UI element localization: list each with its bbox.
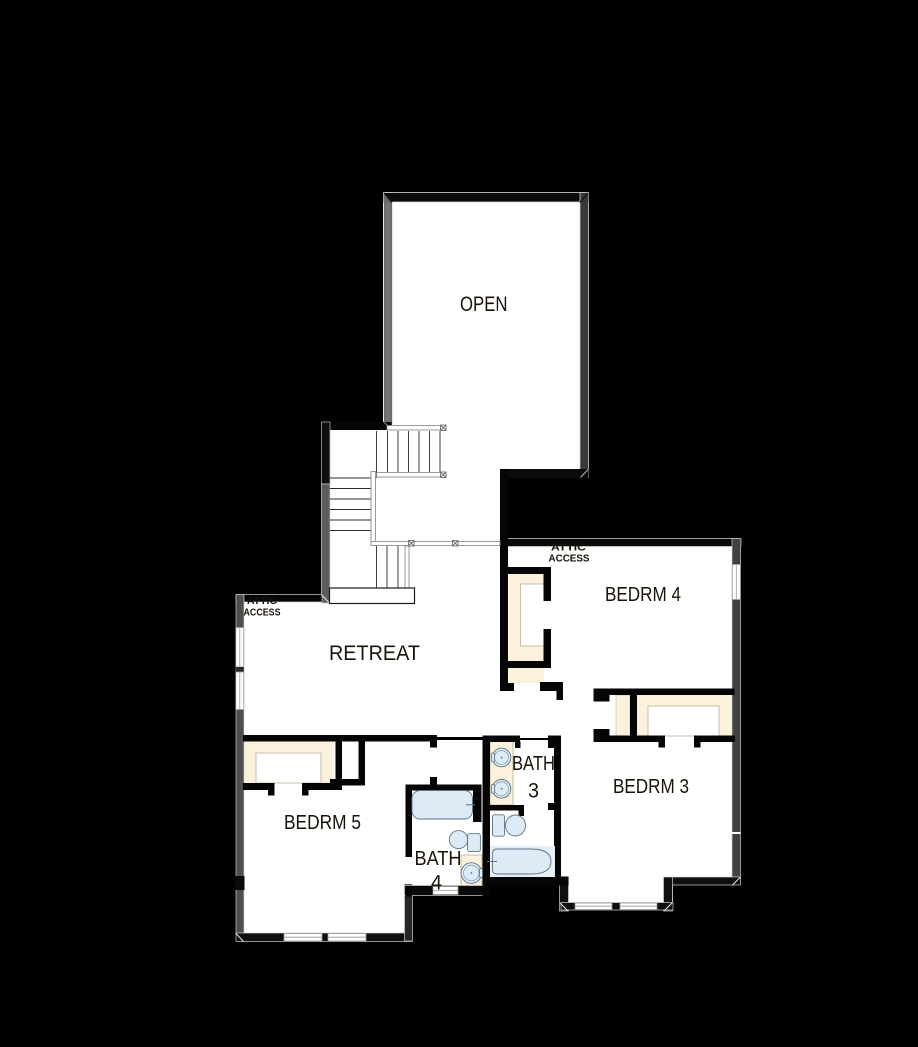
svg-text:ATTIC: ATTIC	[247, 595, 277, 607]
svg-text:BATH: BATH	[415, 847, 462, 870]
svg-text:ACCESS: ACCESS	[549, 553, 590, 565]
svg-text:BEDRM 3: BEDRM 3	[613, 776, 689, 798]
svg-text:OPEN: OPEN	[460, 293, 508, 316]
svg-text:BEDRM 4: BEDRM 4	[605, 584, 681, 606]
svg-text:ACCESS: ACCESS	[244, 607, 281, 619]
svg-text:BATH: BATH	[512, 753, 555, 775]
svg-text:3: 3	[528, 780, 539, 803]
svg-text:RETREAT: RETREAT	[329, 642, 420, 665]
svg-text:4: 4	[431, 872, 442, 895]
svg-text:BEDRM 5: BEDRM 5	[284, 812, 361, 834]
